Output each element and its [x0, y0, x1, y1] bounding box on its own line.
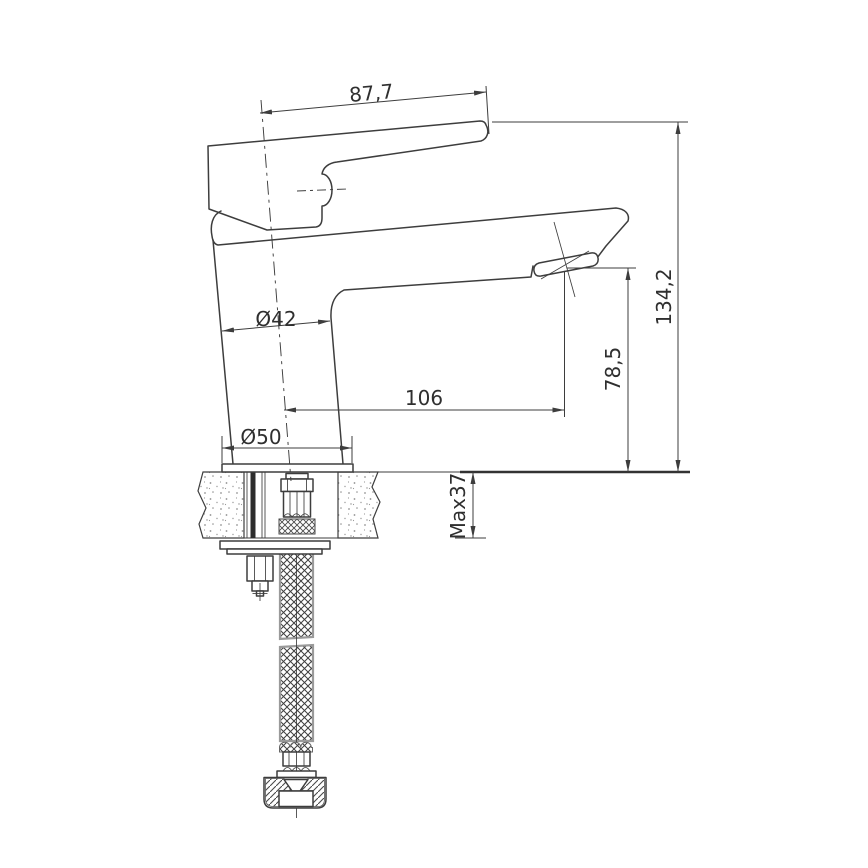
faucet — [208, 100, 628, 481]
dimension-body-diameter: Ø42 — [222, 307, 330, 331]
washer-plate-lower — [227, 549, 322, 554]
faucet-body-left-edge — [213, 240, 233, 464]
dimension-label-max-countertop: Max37 — [446, 473, 470, 540]
dimension-max-countertop: Max37 — [446, 472, 486, 539]
countertop — [198, 472, 690, 538]
dimension-label-body-diameter: Ø42 — [255, 307, 296, 331]
mounting-stud-section — [247, 472, 265, 538]
base-plate — [222, 464, 353, 472]
hose-crimp — [279, 519, 315, 534]
dimension-label-base-diameter: Ø50 — [240, 425, 281, 449]
dimension-label-spout-reach: 106 — [405, 386, 443, 410]
connector-cavity — [279, 791, 313, 807]
faucet-spout-underside — [331, 266, 533, 464]
countertop-left-section — [198, 472, 244, 538]
dimension-total-height: 134,2 — [492, 122, 688, 472]
hose-ferrule — [280, 742, 313, 752]
countertop-right-section — [338, 472, 380, 538]
dimension-label-spout-height: 78,5 — [601, 347, 625, 392]
faucet-shank — [279, 474, 315, 535]
faucet-handle — [208, 121, 488, 230]
faucet-technical-drawing: 87,7 134,2 78,5 106 Ø42 Ø — [0, 0, 868, 868]
mounting-nut — [247, 556, 273, 581]
dimension-label-handle-width: 87,7 — [348, 79, 395, 107]
technical-drawing-page: 87,7 134,2 78,5 106 Ø42 Ø — [0, 0, 868, 868]
dimension-spout-height: 78,5 — [567, 268, 636, 472]
dimension-spout-reach: 106 — [284, 271, 565, 417]
washer-plate — [220, 541, 330, 549]
dimension-label-total-height: 134,2 — [652, 268, 676, 325]
connector-flange — [277, 771, 316, 778]
hose-connector — [264, 742, 326, 808]
